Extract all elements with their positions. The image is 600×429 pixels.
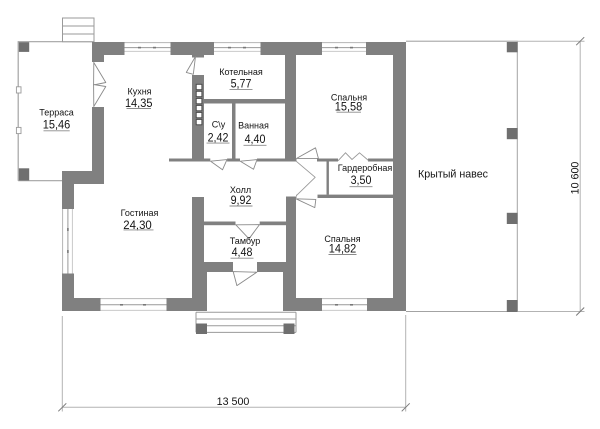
svg-text:4,40: 4,40 [245,133,266,146]
svg-text:10 600: 10 600 [570,162,582,195]
svg-text:4,48: 4,48 [232,246,253,259]
svg-text:Кухня: Кухня [127,87,151,97]
svg-text:Гардеробная: Гардеробная [338,163,393,173]
svg-text:9,92: 9,92 [231,194,252,207]
svg-text:15,58: 15,58 [335,101,363,114]
svg-text:3,50: 3,50 [351,174,372,187]
svg-text:5,77: 5,77 [231,77,252,90]
svg-text:С\у: С\у [212,120,226,130]
svg-text:Котельная: Котельная [219,67,263,77]
svg-text:14,82: 14,82 [329,242,357,255]
svg-text:Ванная: Ванная [238,121,269,131]
svg-text:15,46: 15,46 [43,119,71,132]
svg-text:Тамбур: Тамбур [230,236,261,246]
svg-text:Гостиная: Гостиная [121,208,159,218]
svg-text:Терраса: Терраса [39,108,74,118]
svg-text:13 500: 13 500 [217,396,250,408]
svg-text:Крытый навес: Крытый навес [418,169,489,181]
